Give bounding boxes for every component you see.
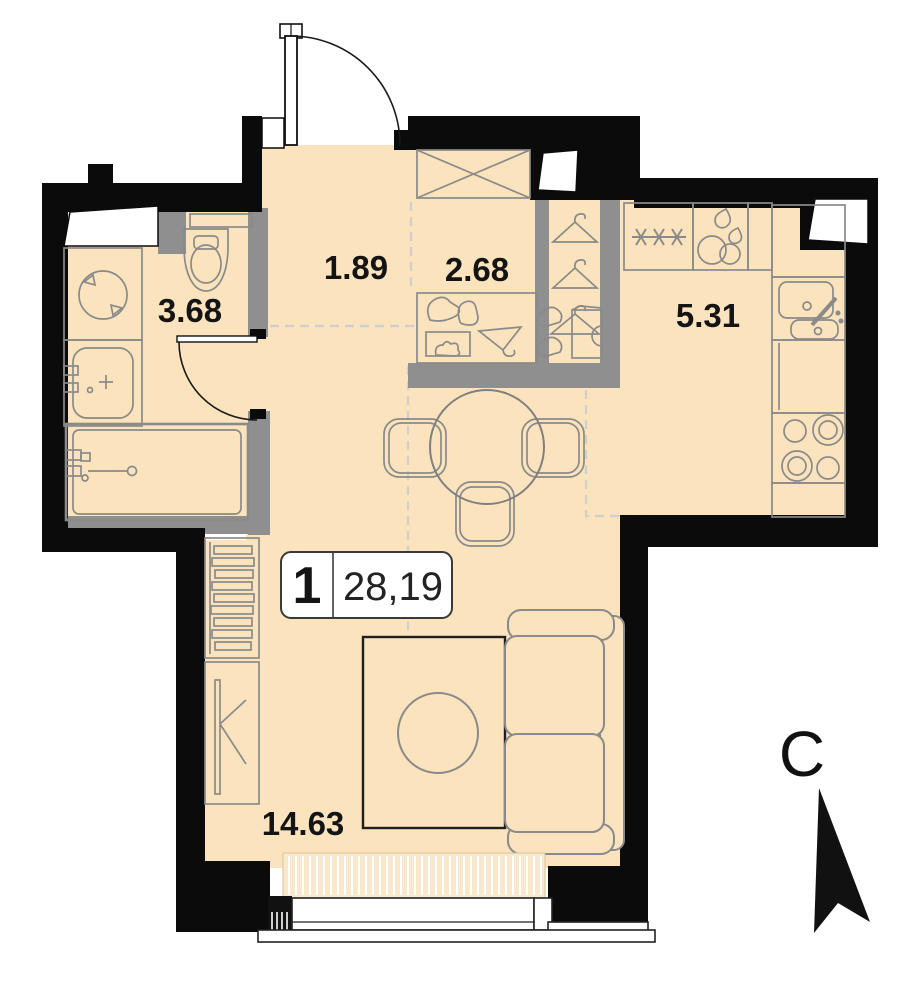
north-label: С xyxy=(779,718,825,790)
door-jamb-right xyxy=(394,130,410,150)
wall-entry-top xyxy=(408,116,640,150)
hall-wall-niche xyxy=(538,150,578,192)
bathroom-door-leaf xyxy=(177,336,257,342)
room-label-closet: 2.68 xyxy=(445,251,509,288)
entrance-door-leaf xyxy=(285,36,297,145)
unit-rooms-count: 1 xyxy=(293,557,322,615)
floor-plan-page: 3.68 1.89 2.68 5.31 14.63 1 28,19 С xyxy=(0,0,919,986)
room-label-living: 14.63 xyxy=(262,805,345,842)
compass: С xyxy=(779,718,870,933)
floor-plan: 3.68 1.89 2.68 5.31 14.63 1 28,19 С xyxy=(0,0,919,986)
entrance-door-icon xyxy=(280,24,400,145)
bath-door-jamb-bottom xyxy=(250,409,266,419)
wall-right xyxy=(845,206,878,528)
sofa-icon xyxy=(505,610,624,854)
north-arrow-icon xyxy=(814,788,870,933)
wall-kitchen-bottom xyxy=(648,515,878,547)
closet-bottom-wall xyxy=(408,363,620,388)
wall-under-bath xyxy=(42,528,205,552)
unit-badge: 1 28,19 xyxy=(281,552,452,618)
unit-total-area: 28,19 xyxy=(343,565,443,609)
wall-top-notch xyxy=(88,164,113,186)
wall-entry-pillar xyxy=(242,116,262,212)
bathroom-shaft-niche xyxy=(64,206,158,246)
radiator-icon xyxy=(283,853,545,898)
room-label-hallway: 1.89 xyxy=(324,249,388,286)
entry-door-frame-niche xyxy=(262,118,284,148)
wall-left-lower xyxy=(176,541,205,882)
bathroom-shaft-wall xyxy=(158,206,186,254)
room-label-bathroom: 3.68 xyxy=(158,292,222,329)
closet-right-wall xyxy=(600,190,620,365)
room-label-kitchen: 5.31 xyxy=(676,297,740,334)
wall-bottom-right xyxy=(548,866,648,924)
entrance-door-swing xyxy=(291,36,400,145)
